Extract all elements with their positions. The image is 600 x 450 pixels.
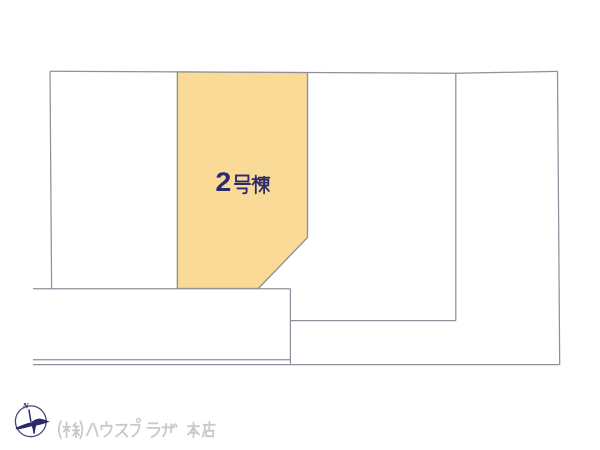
svg-text:2: 2 bbox=[215, 167, 231, 197]
svg-text:N: N bbox=[22, 401, 30, 411]
